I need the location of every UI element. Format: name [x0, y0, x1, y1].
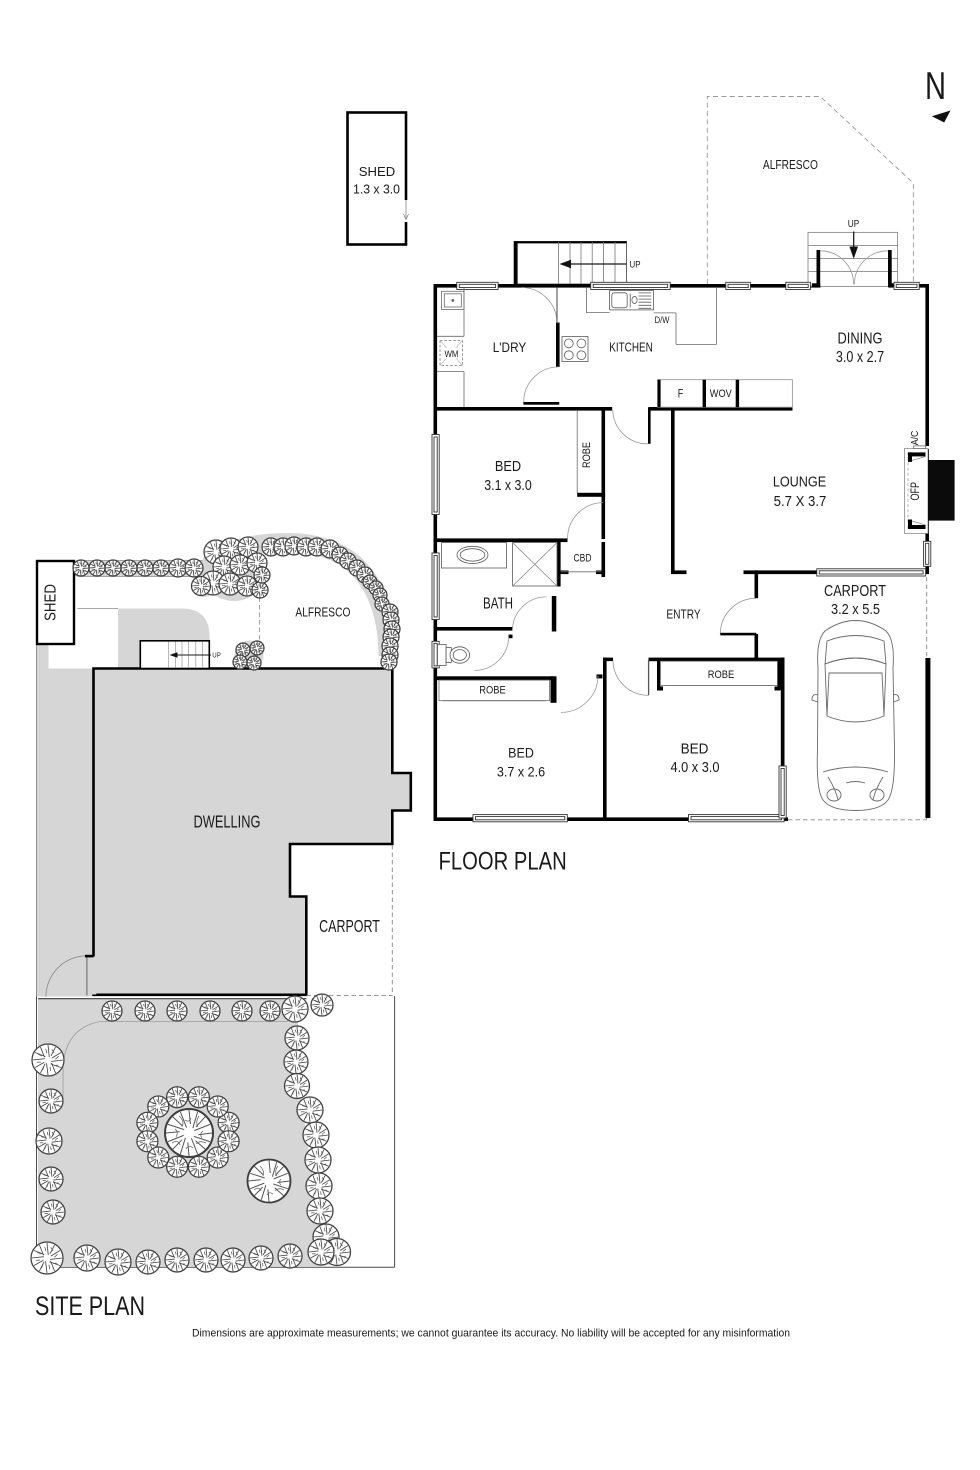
svg-text:UP: UP	[212, 653, 221, 660]
svg-text:L'DRY: L'DRY	[493, 339, 527, 355]
svg-text:LOUNGE: LOUNGE	[773, 474, 826, 491]
svg-text:1.3 x 3.0: 1.3 x 3.0	[353, 182, 400, 197]
svg-text:UP: UP	[630, 260, 641, 271]
svg-text:SITE PLAN: SITE PLAN	[35, 1291, 145, 1321]
svg-text:D/W: D/W	[655, 315, 670, 325]
svg-text:KITCHEN: KITCHEN	[609, 340, 653, 355]
svg-text:N: N	[925, 65, 946, 108]
svg-text:FLOOR PLAN: FLOOR PLAN	[439, 848, 567, 876]
svg-text:BED: BED	[508, 746, 534, 762]
svg-text:ALFRESCO: ALFRESCO	[295, 605, 350, 619]
svg-text:4.0 x 3.0: 4.0 x 3.0	[671, 759, 720, 776]
svg-text:SHED: SHED	[42, 584, 59, 621]
svg-text:WM: WM	[445, 349, 459, 360]
svg-text:5.7 X 3.7: 5.7 X 3.7	[774, 493, 827, 510]
svg-text:ROBE: ROBE	[479, 685, 506, 697]
svg-text:A/C: A/C	[910, 431, 921, 446]
svg-text:Dimensions are approximate mea: Dimensions are approximate measurements;…	[192, 1328, 790, 1340]
svg-text:DWELLING: DWELLING	[194, 811, 261, 831]
svg-text:3.1 x 3.0: 3.1 x 3.0	[484, 477, 532, 494]
svg-text:F: F	[678, 387, 684, 401]
svg-text:ROBE: ROBE	[581, 442, 593, 468]
svg-text:3.7 x 2.6: 3.7 x 2.6	[497, 764, 545, 780]
svg-text:OFP: OFP	[910, 482, 922, 501]
svg-text:BED: BED	[681, 740, 709, 757]
svg-text:SHED: SHED	[359, 164, 396, 179]
svg-text:3.0 x 2.7: 3.0 x 2.7	[836, 349, 884, 366]
svg-text:CARPORT: CARPORT	[824, 583, 886, 600]
svg-text:3.2 x 5.5: 3.2 x 5.5	[831, 601, 880, 618]
svg-text:DINING: DINING	[838, 330, 883, 347]
svg-text:ROBE: ROBE	[708, 669, 735, 681]
svg-text:ALFRESCO: ALFRESCO	[763, 158, 818, 172]
svg-text:ENTRY: ENTRY	[666, 607, 701, 621]
svg-text:UP: UP	[848, 219, 860, 230]
svg-text:CBD: CBD	[574, 553, 592, 565]
svg-text:CARPORT: CARPORT	[319, 916, 380, 936]
svg-text:WOV: WOV	[710, 388, 733, 400]
svg-text:BATH: BATH	[483, 596, 513, 613]
svg-text:BED: BED	[495, 458, 521, 475]
